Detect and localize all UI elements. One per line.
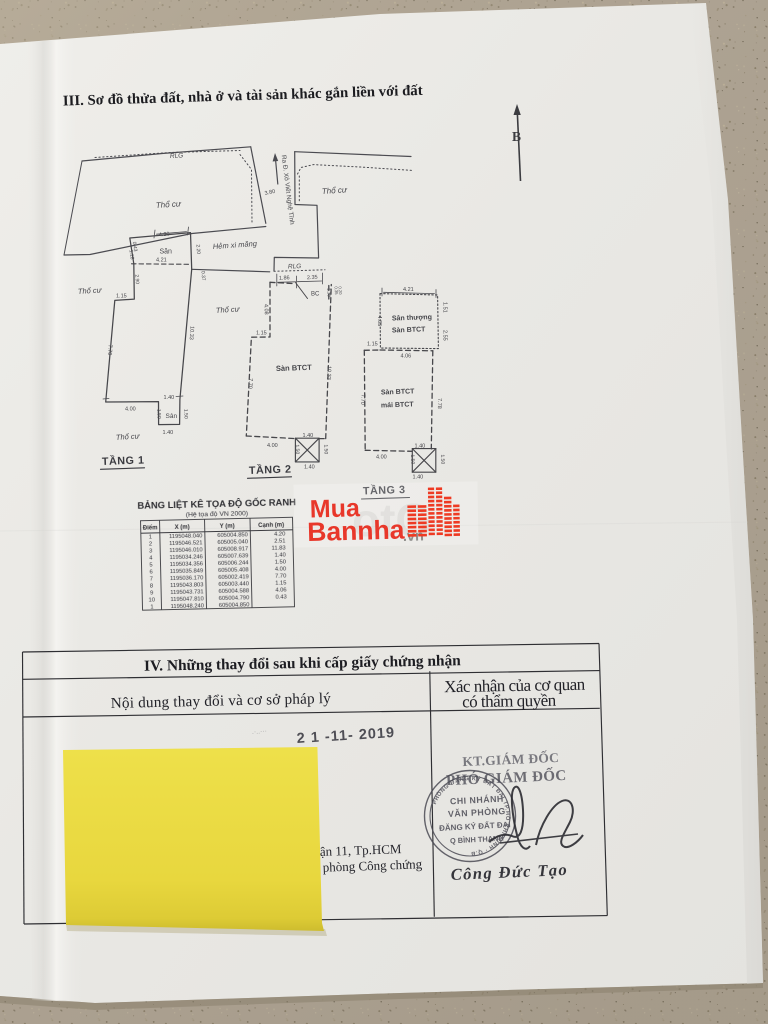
svg-text:7.70: 7.70 [275, 573, 286, 579]
svg-text:1195043.803: 1195043.803 [170, 582, 204, 589]
svg-text:1195036.170: 1195036.170 [170, 575, 204, 582]
svg-text:Thổ cư: Thổ cư [216, 304, 241, 315]
svg-text:1.50: 1.50 [275, 559, 286, 565]
svg-text:1195046.521: 1195046.521 [169, 540, 203, 547]
svg-text:1: 1 [150, 604, 153, 610]
svg-text:Sàn BTCT: Sàn BTCT [381, 388, 415, 396]
svg-text:1195046.010: 1195046.010 [169, 547, 203, 554]
svg-text:1.50: 1.50 [322, 444, 328, 454]
svg-text:7.70: 7.70 [359, 394, 366, 405]
svg-text:6: 6 [150, 569, 153, 575]
svg-text:1195034.356: 1195034.356 [170, 561, 204, 568]
svg-text:8: 8 [150, 583, 153, 589]
svg-text:605006.244: 605006.244 [218, 560, 250, 567]
svg-text:2.51: 2.51 [274, 538, 285, 544]
svg-text:1.40: 1.40 [304, 464, 315, 470]
svg-text:11.83: 11.83 [272, 545, 286, 551]
svg-text:0.20: 0.20 [338, 286, 344, 295]
svg-text:605004.588: 605004.588 [218, 588, 249, 595]
svg-text:1.40: 1.40 [163, 430, 174, 436]
svg-text:(Hệ tọa độ VN 2000): (Hệ tọa độ VN 2000) [186, 510, 248, 518]
svg-text:Thổ cư: Thổ cư [78, 285, 103, 296]
svg-text:TẦNG 2: TẦNG 2 [249, 462, 292, 476]
svg-text:1.15: 1.15 [116, 294, 127, 300]
svg-text:.·..···: .·..··· [252, 728, 268, 736]
svg-text:4.00: 4.00 [275, 566, 286, 572]
svg-text:4.20: 4.20 [159, 231, 170, 238]
svg-text:1195048.240: 1195048.240 [170, 603, 204, 610]
svg-text:1.15: 1.15 [256, 330, 267, 336]
svg-text:2.90: 2.90 [133, 274, 140, 284]
svg-text:1.15: 1.15 [367, 342, 378, 348]
svg-text:Sân: Sân [160, 249, 173, 256]
svg-text:0.37: 0.37 [200, 271, 207, 281]
svg-text:ận 11, Tp.HCM: ận 11, Tp.HCM [320, 841, 403, 859]
svg-text:mái BTCT: mái BTCT [381, 401, 415, 409]
svg-text:2: 2 [149, 541, 152, 547]
svg-text:605007.639: 605007.639 [218, 553, 249, 560]
svg-text:4.05: 4.05 [376, 316, 382, 327]
svg-text:Cạnh (m): Cạnh (m) [258, 522, 284, 529]
svg-text:1.40: 1.40 [164, 395, 175, 401]
svg-text:4.21: 4.21 [156, 258, 167, 264]
svg-text:4.20: 4.20 [274, 531, 285, 537]
svg-text:1.50: 1.50 [182, 409, 188, 419]
svg-text:RLG: RLG [170, 152, 184, 160]
svg-text:TẦNG 1: TẦNG 1 [102, 453, 145, 467]
svg-text:2.55: 2.55 [441, 330, 447, 341]
svg-text:Sàn BTCT: Sàn BTCT [276, 363, 313, 373]
svg-text:Điểm: Điểm [143, 524, 158, 531]
svg-text:605005.040: 605005.040 [217, 539, 248, 546]
svg-text:Thổ cư: Thổ cư [116, 431, 141, 442]
svg-text:3: 3 [149, 548, 152, 554]
svg-text:Sàn BTCT: Sàn BTCT [392, 326, 426, 334]
svg-text:1195043.731: 1195043.731 [170, 589, 204, 596]
svg-text:1195034.246: 1195034.246 [169, 554, 203, 561]
svg-text:1.50: 1.50 [155, 409, 161, 419]
svg-text:2.35: 2.35 [307, 275, 318, 282]
svg-text:7.78: 7.78 [436, 398, 442, 409]
svg-text:605003.440: 605003.440 [218, 581, 249, 588]
svg-text:10: 10 [149, 597, 156, 603]
svg-text:0.43: 0.43 [275, 594, 286, 600]
svg-text:1.86: 1.86 [279, 275, 290, 282]
svg-text:5: 5 [149, 562, 152, 568]
svg-text:1.40: 1.40 [413, 475, 424, 481]
svg-text:1.40: 1.40 [415, 443, 426, 449]
svg-text:605004.850: 605004.850 [217, 532, 248, 539]
svg-text:1195035.849: 1195035.849 [170, 568, 204, 575]
svg-text:BC: BC [311, 292, 320, 298]
svg-text:605005.408: 605005.408 [218, 567, 249, 574]
svg-text:1.50: 1.50 [409, 454, 415, 464]
svg-text:7.70: 7.70 [247, 378, 254, 389]
svg-text:10.33: 10.33 [325, 366, 331, 380]
svg-text:Bannha: Bannha [307, 514, 405, 547]
svg-text:1: 1 [149, 534, 152, 540]
svg-text:1195048.040: 1195048.040 [169, 533, 203, 540]
svg-text:4.00: 4.00 [376, 455, 387, 461]
svg-text:4.08: 4.08 [263, 304, 269, 315]
svg-text:4.00: 4.00 [267, 443, 278, 449]
svg-text:có thẩm quyền: có thẩm quyền [462, 691, 557, 712]
svg-text:1.15: 1.15 [275, 580, 286, 586]
svg-text:Thổ cư: Thổ cư [156, 199, 183, 210]
svg-text:9: 9 [150, 590, 153, 596]
svg-text:7.70: 7.70 [106, 344, 113, 355]
svg-text:1.40: 1.40 [274, 552, 285, 558]
svg-text:1.40: 1.40 [303, 433, 314, 439]
svg-text:2.20: 2.20 [195, 244, 202, 254]
svg-text:RLG: RLG [288, 263, 302, 270]
svg-text:Y (m): Y (m) [220, 524, 235, 530]
svg-text:605004.790: 605004.790 [219, 595, 250, 602]
svg-text:1195047.810: 1195047.810 [170, 596, 204, 603]
svg-text:1.51: 1.51 [442, 302, 448, 313]
svg-text:Sân: Sân [166, 413, 178, 420]
svg-text:1.50: 1.50 [439, 454, 445, 464]
svg-text:10.33: 10.33 [188, 326, 195, 340]
svg-text:605008.917: 605008.917 [217, 546, 248, 553]
svg-text:4.00: 4.00 [125, 407, 136, 413]
svg-text:4.06: 4.06 [401, 353, 412, 359]
svg-text:Sân thượng: Sân thượng [392, 314, 432, 322]
svg-text:1.38: 1.38 [326, 288, 332, 298]
svg-text:B: B [512, 129, 521, 144]
svg-text:X (m): X (m) [175, 525, 190, 531]
svg-text:4.06: 4.06 [275, 587, 286, 593]
svg-text:605002.419: 605002.419 [218, 574, 249, 581]
svg-text:7: 7 [150, 576, 153, 582]
svg-text:4.21: 4.21 [403, 287, 414, 293]
svg-text:605004.850: 605004.850 [219, 602, 250, 609]
svg-text:1.50: 1.50 [294, 444, 300, 454]
svg-text:Thổ cư: Thổ cư [322, 185, 349, 196]
